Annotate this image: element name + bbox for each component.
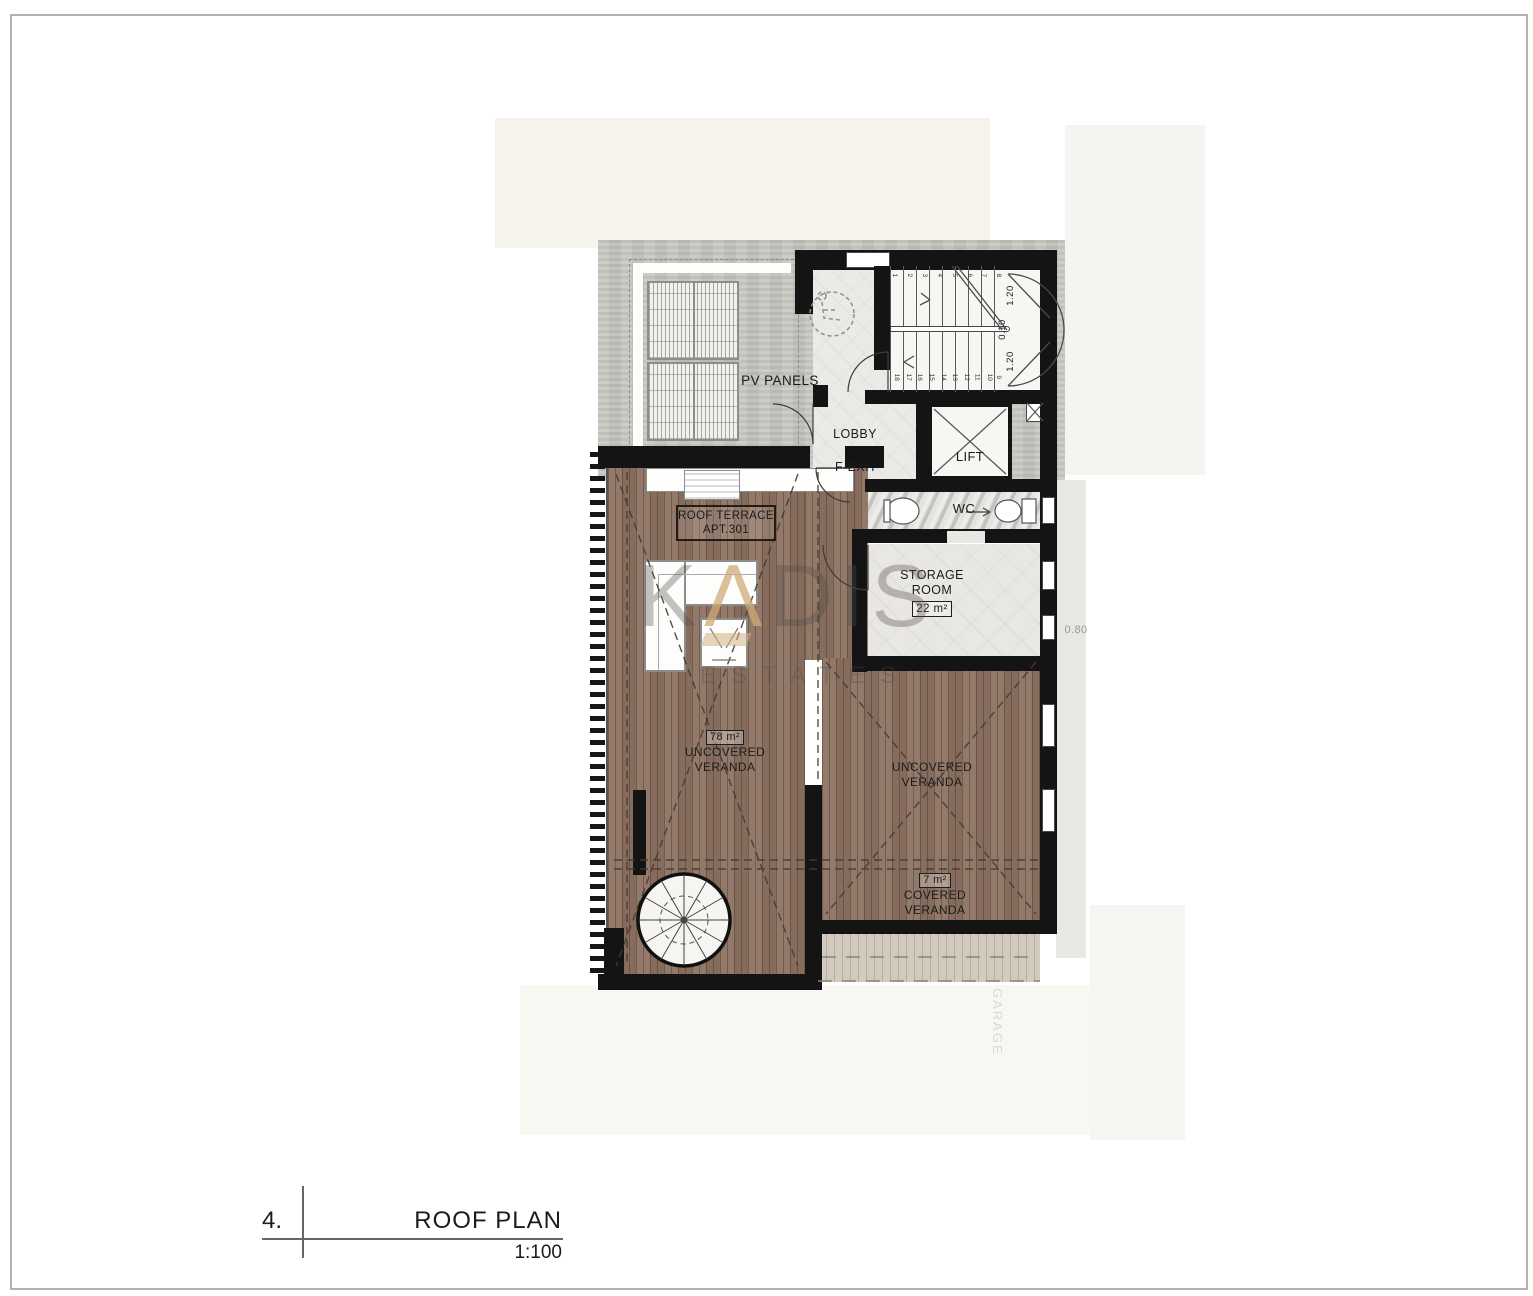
- covered-line2: VERANDA: [905, 903, 966, 917]
- stair-number: 4: [935, 273, 942, 277]
- title-block-vline: [302, 1186, 304, 1258]
- window-right-4: [1042, 704, 1055, 747]
- sheet-number: 4.: [262, 1207, 282, 1235]
- watermark-letter: S: [872, 552, 938, 640]
- window-right-5: [1042, 789, 1055, 832]
- wall-under-stairs: [865, 390, 1057, 404]
- pergola-louver-edge: [590, 452, 605, 978]
- stair-number: 12: [962, 374, 969, 381]
- stair-number: 10: [985, 374, 992, 381]
- pv-panel-divider: [693, 283, 695, 358]
- stair-numbers-top: 12345678: [892, 272, 1000, 279]
- bbq-grill: [684, 470, 740, 500]
- veranda-left-area-box: 78 m²: [706, 730, 744, 745]
- wall-terrace-top-a: [598, 446, 810, 468]
- veranda-left-label: 78 m² UNCOVERED VERANDA: [675, 729, 775, 775]
- wall-right-deck-bottom: [822, 920, 1040, 934]
- covered-line1: COVERED: [904, 888, 966, 902]
- window-right-3: [1042, 615, 1055, 640]
- ghost-block-top-right: [1065, 125, 1205, 475]
- wall-deck-divider: [805, 785, 822, 990]
- watermark-letter-gold: Λ: [704, 552, 770, 640]
- ghost-trees-top: [495, 118, 990, 248]
- room-label-wc: WC: [936, 501, 992, 517]
- covered-area-box: 7 m²: [919, 873, 951, 888]
- dim-side-offset: 0.80: [1056, 624, 1096, 637]
- room-label-pv-panels: PV PANELS: [725, 373, 835, 389]
- plan-title: ROOF PLAN: [342, 1207, 562, 1235]
- roof-terrace-deck-left: [608, 468, 805, 978]
- stair-number: 15: [927, 374, 934, 381]
- room-label-f-exit: F-EXIT: [820, 460, 892, 475]
- stair-number: 1: [891, 273, 898, 277]
- plan-scale: 1:100: [442, 1242, 562, 1264]
- pv-frame-vertical: [633, 263, 643, 457]
- watermark-logo: KΛDIS: [638, 552, 937, 640]
- stair-treads-lower: [890, 330, 1006, 392]
- room-label-lobby: LOBBY: [820, 427, 890, 442]
- pv-panel-array-1: [647, 281, 739, 360]
- dim-stair-top: 1.20: [1005, 285, 1016, 306]
- stair-number: 14: [939, 374, 946, 381]
- wall-lobby-topleft: [795, 250, 813, 314]
- uncovered-line2: VERANDA: [902, 775, 963, 789]
- pergola-edge-line: [606, 452, 608, 978]
- watermark-subtitle: ESTATES: [700, 662, 911, 690]
- veranda-right-label: UNCOVERED VERANDA: [882, 760, 982, 789]
- pv-frame-horizontal: [633, 263, 791, 273]
- wall-deck-stub: [633, 790, 646, 875]
- stair-number: 9: [995, 375, 1002, 379]
- wall-wc-top: [865, 479, 1057, 492]
- watermark-gold-bar: [700, 633, 751, 646]
- roof-terrace-line1: ROOF TERRACE: [678, 510, 774, 522]
- stair-rail: [890, 326, 1010, 332]
- stair-number: 18: [892, 374, 899, 381]
- wall-wc-bottom: [852, 529, 1040, 543]
- stair-number: 3: [920, 273, 927, 277]
- door-gap-wc: [947, 531, 985, 543]
- side-ledge-strip: [1056, 480, 1086, 958]
- stair-number: 16: [916, 374, 923, 381]
- watermark-letter: D: [769, 552, 840, 640]
- stair-number: 13: [951, 374, 958, 381]
- ghost-bottom: [520, 985, 1095, 1135]
- dim-stair-gap: 0.10: [997, 319, 1008, 340]
- roof-terrace-title-box: ROOF TERRACE APT.301: [676, 505, 776, 541]
- ghost-bottom-right: [1090, 905, 1185, 1140]
- watermark-letter: I: [840, 552, 871, 640]
- uncovered-line1: UNCOVERED: [685, 745, 765, 759]
- floor-plan-sheet: GARAGE: [0, 0, 1533, 1296]
- dim-stair-bottom: 1.20: [1005, 351, 1016, 372]
- covered-veranda-strip: [818, 932, 1040, 982]
- stair-number: 6: [965, 273, 972, 277]
- covered-veranda-label: 7 m² COVERED VERANDA: [885, 872, 985, 918]
- stair-number: 5: [950, 273, 957, 277]
- wall-stair-divider: [874, 266, 890, 370]
- pv-panel-divider: [693, 364, 695, 439]
- ghost-garage-label: GARAGE: [990, 988, 1005, 1056]
- uncovered-line2: VERANDA: [695, 760, 756, 774]
- stair-number: 7: [980, 273, 987, 277]
- stair-number: 8: [995, 273, 1002, 277]
- stair-number: 17: [904, 374, 911, 381]
- wall-bottom-left: [598, 974, 822, 990]
- title-block-hline: [262, 1238, 563, 1240]
- stair-numbers-bottom: 1817161514131211109: [892, 374, 1000, 381]
- room-label-lift: LIFT: [938, 449, 1002, 465]
- window-right-1: [1042, 497, 1055, 524]
- uncovered-line1: UNCOVERED: [892, 760, 972, 774]
- window-right-2: [1042, 561, 1055, 590]
- stair-number: 2: [905, 273, 912, 277]
- wall-lift-left: [916, 402, 928, 482]
- watermark-letter: K: [638, 552, 704, 640]
- roof-terrace-line2: APT.301: [703, 524, 749, 536]
- stair-number: 11: [974, 374, 981, 381]
- lift-shaft: [928, 403, 1012, 480]
